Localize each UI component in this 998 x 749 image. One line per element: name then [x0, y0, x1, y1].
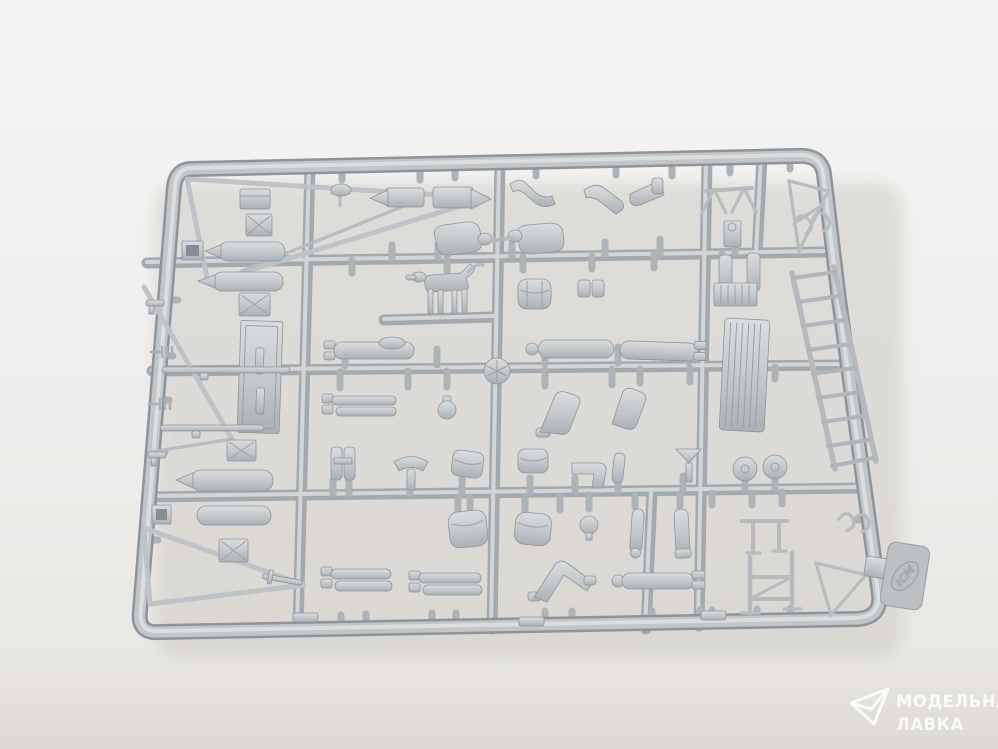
part-corrugated-bench: [714, 283, 757, 306]
part-jerry-can-3: [227, 440, 256, 461]
part-wheel-2: [763, 455, 787, 479]
photo-stage: .p{fill:url(#gp);stroke:#8e9499;stroke-w…: [0, 0, 998, 749]
part-jerry-can-4: [219, 539, 248, 562]
part-backpack: [518, 279, 551, 309]
part-wheel-1: [733, 457, 757, 481]
part-corrugated-door: [719, 318, 770, 432]
part-torso-4: [514, 511, 553, 546]
part-ammo-box: [240, 189, 270, 209]
part-jerry-can-2: [239, 293, 270, 316]
part-pouch-2: [518, 449, 548, 473]
part-fuel-cylinder-4: [197, 506, 271, 525]
part-boot-small: [652, 178, 663, 194]
part-winch-block: [724, 221, 741, 247]
backdrop-table-edge: [0, 655, 998, 749]
part-pouch-1: [450, 449, 484, 479]
part-open-box-2: [152, 505, 171, 524]
part-jerry-can-1: [246, 214, 272, 236]
part-open-box-1: [182, 241, 203, 260]
part-door-panel: [237, 320, 283, 433]
watermark-line2: ЛАВКА: [896, 715, 964, 734]
sprue-photo: .p{fill:url(#gp);stroke:#8e9499;stroke-w…: [0, 0, 998, 749]
part-torso-3: [447, 509, 489, 549]
watermark-line1: МОДЕЛЬНАЯ: [896, 692, 998, 711]
part-leg-2: [673, 509, 692, 559]
part-gate-disc: [484, 358, 510, 384]
